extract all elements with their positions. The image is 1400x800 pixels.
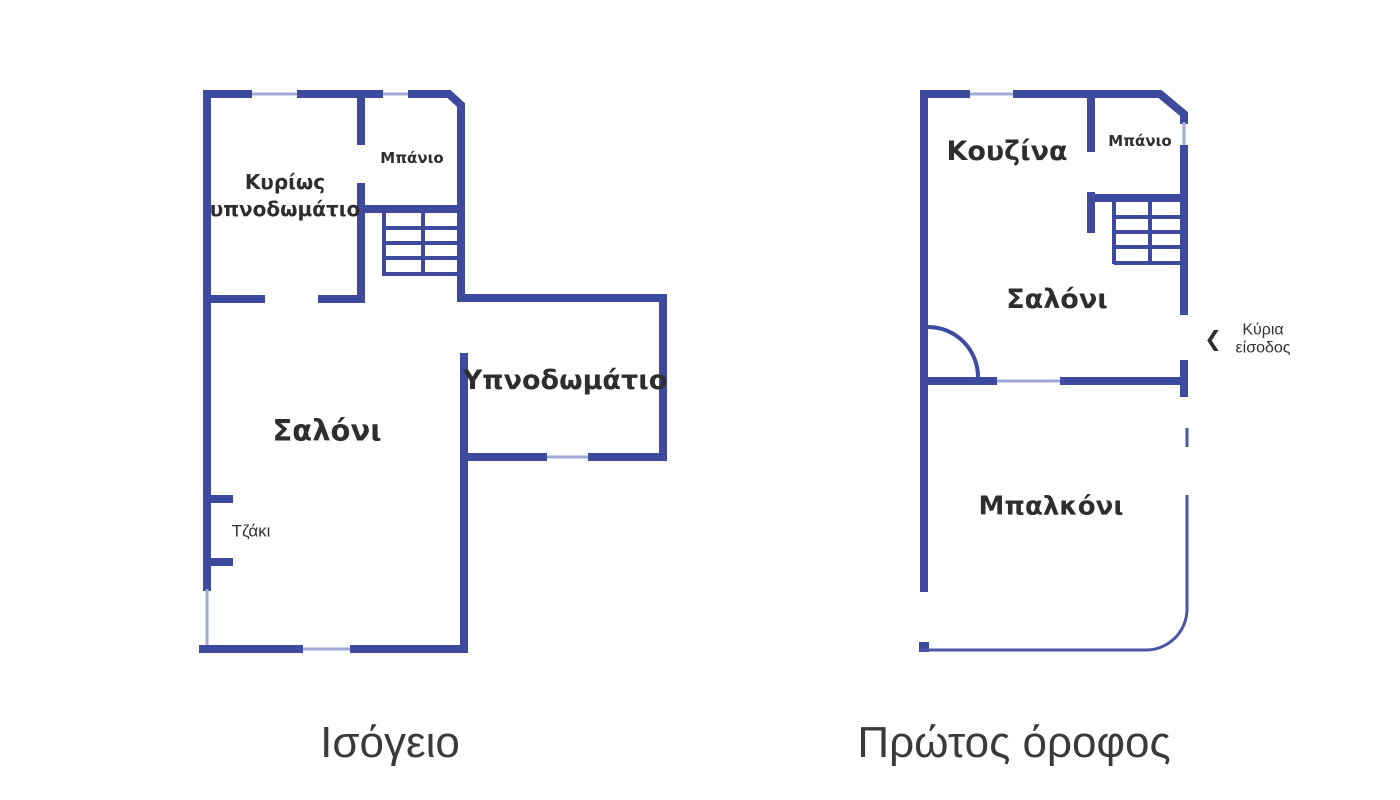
ff-main-entrance-line1: Κύρια — [1236, 322, 1291, 340]
floor-plans-canvas: Κυρίως υπνοδωμάτιο Μπάνιο Σαλόνι Υπνοδωμ… — [0, 0, 1400, 800]
floor-plan-first — [919, 90, 1188, 652]
ff-bathroom-label: Μπάνιο — [1108, 131, 1171, 151]
ff-main-entrance-label: Κύρια είσοδος — [1236, 322, 1291, 359]
ff-staircase — [1114, 200, 1181, 265]
gf-title: Ισόγειο — [320, 718, 460, 768]
gf-bathroom-label: Μπάνιο — [380, 148, 443, 168]
gf-staircase — [384, 211, 459, 276]
ff-kitchen-label: Κουζίνα — [946, 134, 1067, 170]
gf-fireplace-label: Τζάκι — [232, 521, 271, 544]
gf-top-right-corner-wall — [408, 94, 461, 294]
ff-main-entrance-line2: είσοδος — [1236, 340, 1291, 358]
ff-top-right-corner-wall — [1013, 94, 1184, 124]
floor-plan-drawing — [0, 0, 1400, 800]
entrance-chevron-icon: ❮ — [1204, 327, 1222, 351]
gf-bedroom-label: Υπνοδωμάτιο — [463, 363, 668, 399]
gf-living-room-label: Σαλόνι — [272, 411, 381, 450]
ff-living-room-label: Σαλόνι — [1006, 282, 1108, 318]
ff-title: Πρώτος όροφος — [857, 718, 1170, 768]
ff-balcony-label: Μπαλκόνι — [979, 489, 1124, 524]
gf-main-bedroom-label: Κυρίως υπνοδωμάτιο — [200, 169, 370, 223]
ff-door-swing-arc — [928, 327, 978, 377]
